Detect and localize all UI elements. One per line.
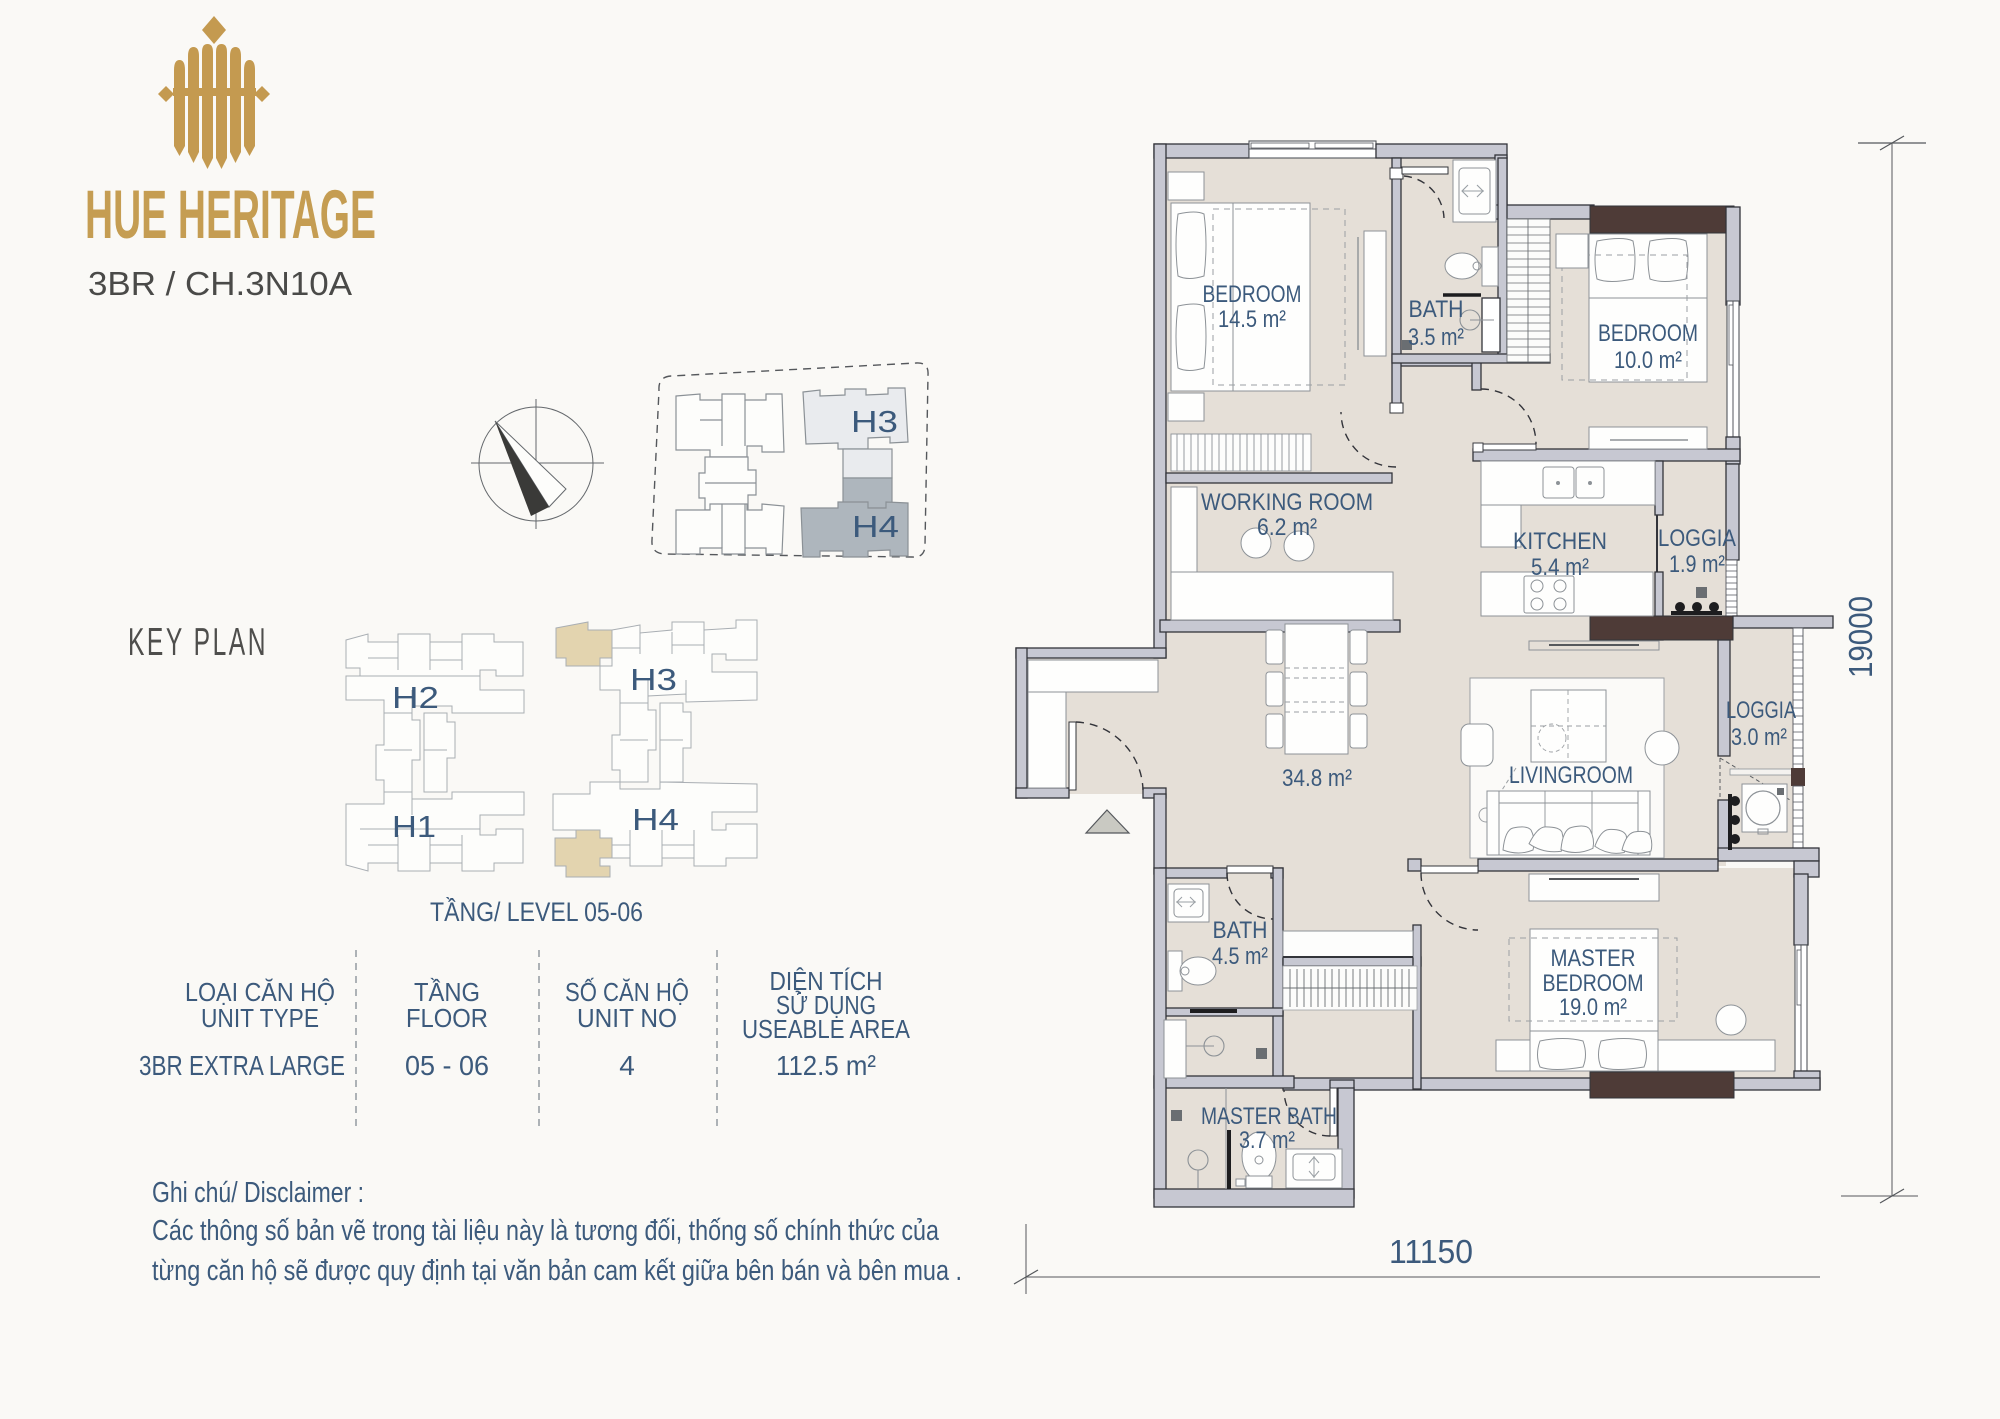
svg-text:H1: H1 (392, 809, 436, 844)
svg-text:LIVINGROOM: LIVINGROOM (1509, 762, 1633, 789)
svg-text:3BR EXTRA LARGE: 3BR EXTRA LARGE (139, 1050, 345, 1081)
svg-text:LOGGIA: LOGGIA (1726, 697, 1796, 724)
svg-text:từng căn hộ sẽ được quy định t: từng căn hộ sẽ được quy định tại văn bản… (152, 1255, 962, 1287)
svg-text:H4: H4 (632, 802, 679, 837)
svg-text:FLOOR: FLOOR (406, 1003, 488, 1033)
svg-text:BATH: BATH (1409, 296, 1464, 323)
svg-text:3.0 m²: 3.0 m² (1731, 724, 1787, 751)
svg-text:3BR / CH.3N10A: 3BR / CH.3N10A (88, 265, 352, 302)
svg-text:MASTER BATH: MASTER BATH (1201, 1103, 1337, 1130)
svg-text:Các thông số bản vẽ trong tài: Các thông số bản vẽ trong tài liệu này l… (152, 1215, 940, 1247)
svg-text:19.0 m²: 19.0 m² (1559, 994, 1627, 1021)
svg-text:UNIT TYPE: UNIT TYPE (201, 1003, 319, 1033)
svg-text:BEDROOM: BEDROOM (1598, 320, 1698, 347)
svg-text:112.5 m²: 112.5 m² (776, 1050, 876, 1081)
svg-text:11150: 11150 (1389, 1233, 1473, 1270)
svg-text:H3: H3 (630, 662, 677, 697)
svg-text:UNIT NO: UNIT NO (577, 1003, 677, 1033)
svg-text:19000: 19000 (1842, 596, 1879, 678)
svg-text:Ghi chú/ Disclaimer :: Ghi chú/ Disclaimer : (152, 1177, 364, 1209)
svg-text:34.8 m²: 34.8 m² (1282, 765, 1352, 792)
svg-text:H2: H2 (392, 680, 439, 715)
svg-text:05 - 06: 05 - 06 (405, 1050, 489, 1081)
svg-text:4: 4 (619, 1050, 635, 1081)
svg-text:10.0 m²: 10.0 m² (1614, 347, 1682, 374)
svg-text:TẦNG/ LEVEL 05-06: TẦNG/ LEVEL 05-06 (430, 896, 643, 927)
svg-text:BEDROOM: BEDROOM (1203, 281, 1302, 308)
svg-text:1.9 m²: 1.9 m² (1669, 551, 1725, 578)
svg-text:LOGGIA: LOGGIA (1658, 525, 1736, 552)
svg-text:USEABLE AREA: USEABLE AREA (742, 1014, 911, 1044)
svg-text:H4: H4 (852, 509, 899, 544)
svg-text:3.7 m²: 3.7 m² (1239, 1127, 1295, 1154)
svg-text:BATH: BATH (1213, 917, 1268, 944)
svg-text:4.5 m²: 4.5 m² (1212, 943, 1268, 970)
svg-text:6.2 m²: 6.2 m² (1257, 514, 1317, 541)
svg-text:MASTER: MASTER (1551, 945, 1636, 972)
svg-text:KITCHEN: KITCHEN (1513, 528, 1607, 555)
svg-text:5.4 m²: 5.4 m² (1531, 554, 1589, 581)
svg-text:WORKING ROOM: WORKING ROOM (1201, 489, 1373, 516)
svg-text:BEDROOM: BEDROOM (1543, 970, 1644, 997)
svg-text:KEY PLAN: KEY PLAN (128, 621, 268, 664)
svg-text:H3: H3 (851, 404, 898, 439)
svg-text:3.5 m²: 3.5 m² (1408, 324, 1464, 351)
svg-text:HUE HERITAGE: HUE HERITAGE (85, 176, 376, 253)
svg-text:14.5 m²: 14.5 m² (1218, 306, 1286, 333)
